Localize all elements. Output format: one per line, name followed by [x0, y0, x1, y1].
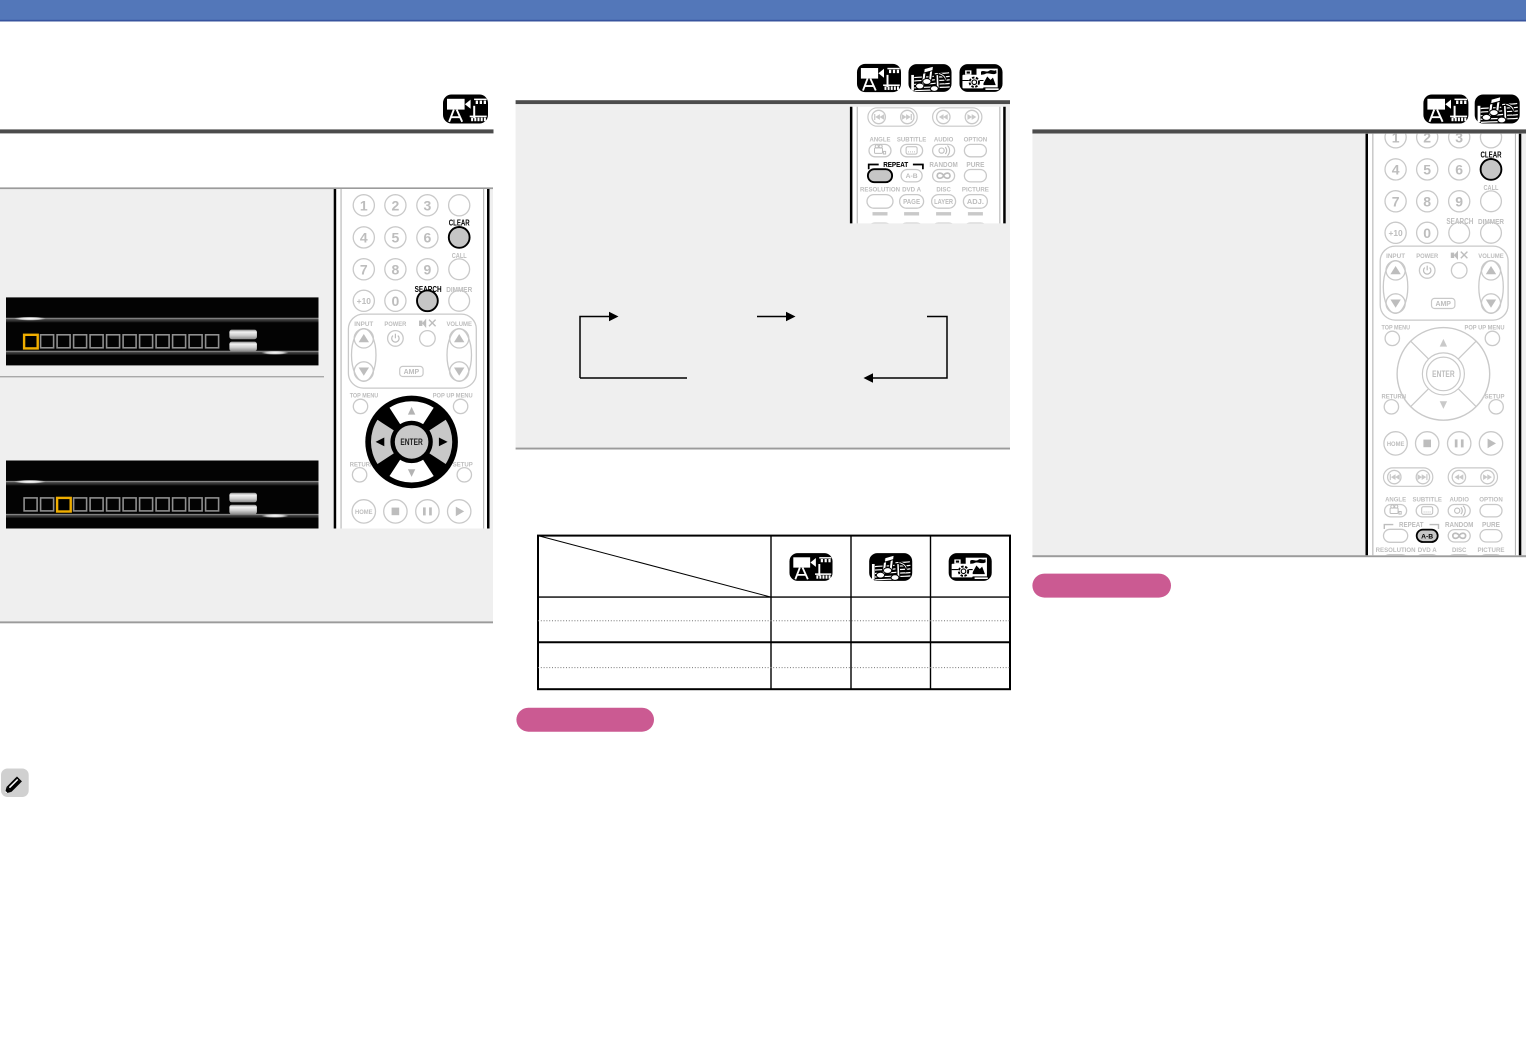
svg-text:ENTER: ENTER — [1432, 369, 1455, 379]
svg-text:REPEAT: REPEAT — [883, 160, 908, 169]
svg-text:ENTER: ENTER — [400, 437, 423, 447]
svg-text:SEARCH: SEARCH — [1446, 217, 1473, 226]
svg-text:CLEAR: CLEAR — [1481, 150, 1502, 159]
svg-text:CLEAR: CLEAR — [449, 218, 470, 227]
svg-text:A-B: A-B — [1421, 533, 1433, 540]
